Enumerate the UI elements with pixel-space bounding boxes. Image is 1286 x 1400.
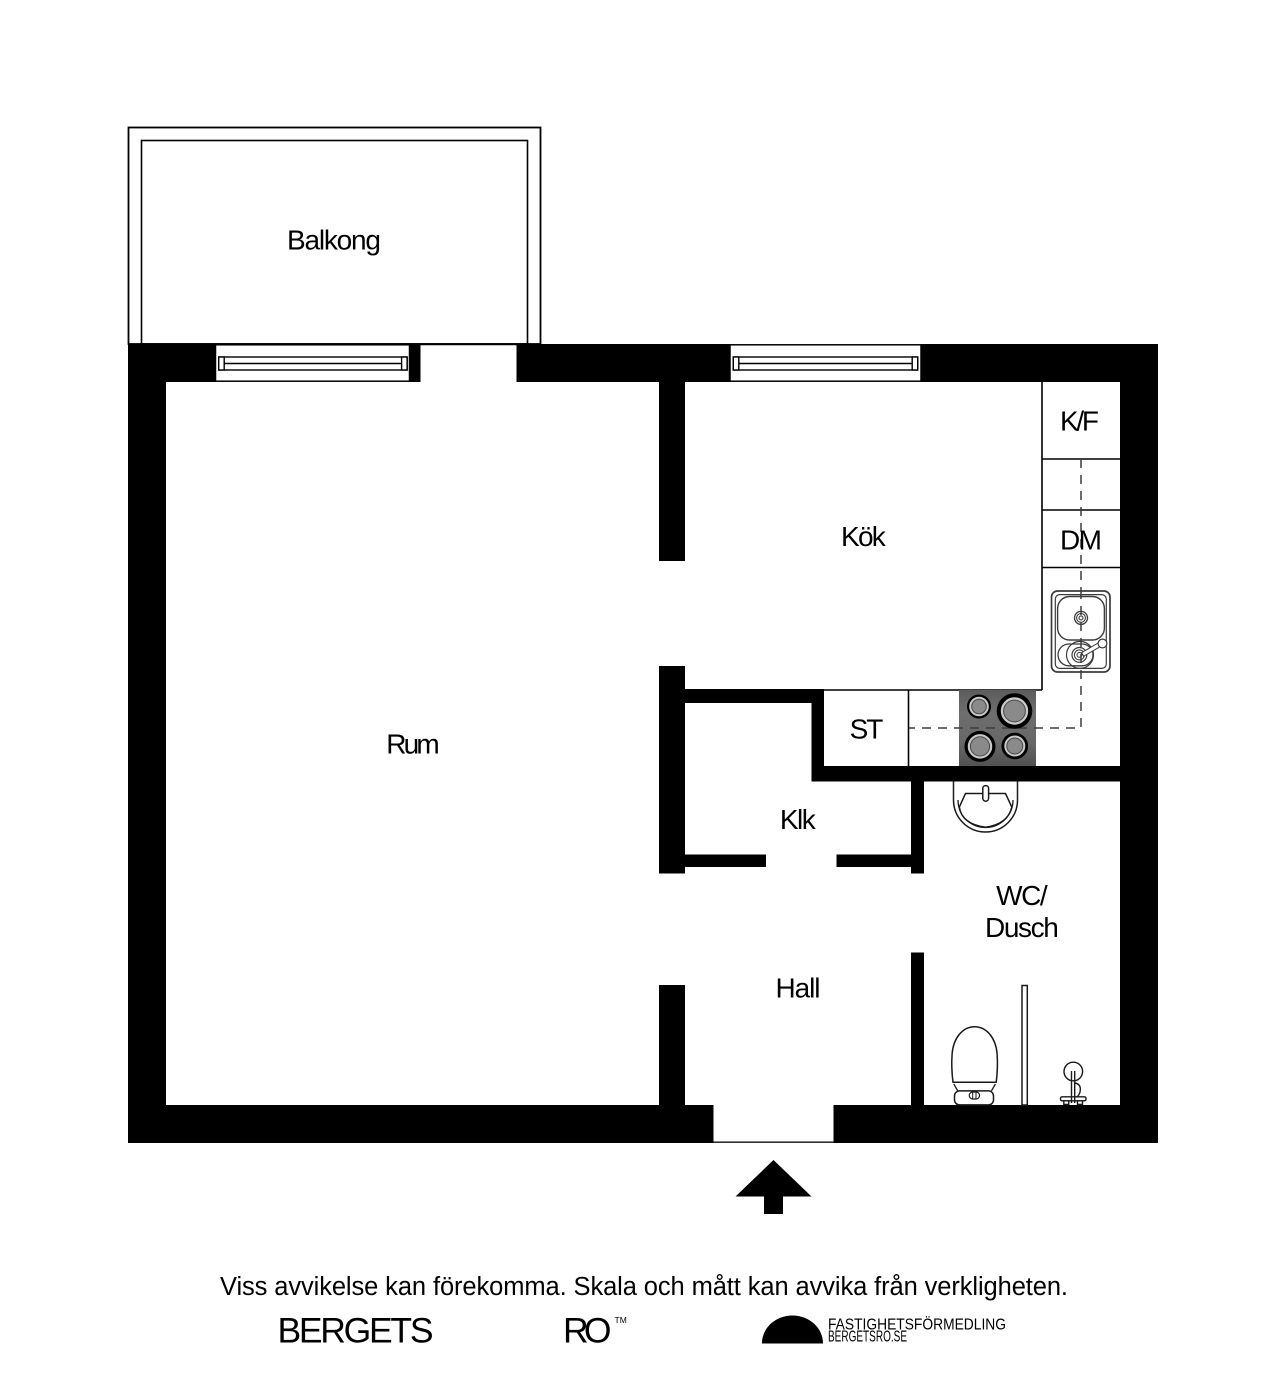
svg-text:Klk: Klk <box>780 804 817 835</box>
svg-text:BERGETSRO.SE: BERGETSRO.SE <box>828 1329 907 1346</box>
svg-text:Kök: Kök <box>841 521 887 552</box>
svg-text:Dusch: Dusch <box>985 912 1059 943</box>
svg-text:ST: ST <box>850 714 884 745</box>
svg-text:DM: DM <box>1060 525 1102 556</box>
svg-text:TM: TM <box>615 1315 627 1325</box>
svg-text:Rum: Rum <box>386 729 440 760</box>
svg-text:BERGETS: BERGETS <box>278 1311 434 1351</box>
svg-text:K/F: K/F <box>1060 406 1099 437</box>
svg-text:Hall: Hall <box>776 973 821 1004</box>
svg-text:WC/: WC/ <box>996 880 1048 911</box>
svg-text:Viss avvikelse kan förekomma.: Viss avvikelse kan förekomma. Skala och … <box>220 1273 1068 1301</box>
svg-text:RO: RO <box>563 1311 612 1351</box>
svg-text:Balkong: Balkong <box>287 224 381 255</box>
